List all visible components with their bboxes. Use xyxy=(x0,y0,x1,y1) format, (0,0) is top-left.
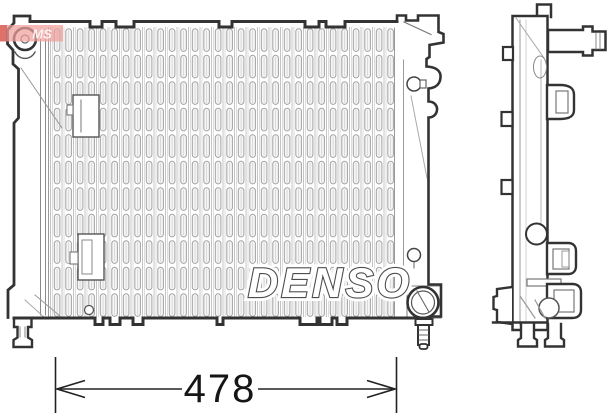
side-inlet-pipe xyxy=(548,27,606,56)
top-rail xyxy=(30,22,397,28)
side-upper-clip xyxy=(547,85,574,119)
radiator-front-view: DENSO DENSO xyxy=(8,16,444,350)
dimension-value: 478 xyxy=(184,367,257,411)
radiator-technical-drawing: DENSO DENSO xyxy=(0,0,614,416)
side-leg-2 xyxy=(545,324,564,347)
side-circle-boss xyxy=(526,224,547,245)
watermark: MS xyxy=(0,25,63,42)
side-left-bump-3 xyxy=(502,180,513,194)
side-leg-1 xyxy=(518,324,537,347)
brand-logo: DENSO xyxy=(248,259,412,306)
side-left-bump-1 xyxy=(503,47,513,60)
watermark-text: MS xyxy=(32,27,52,42)
width-dimension: 478 xyxy=(56,357,397,413)
left-edge xyxy=(8,16,31,318)
bottom-outlet xyxy=(416,319,433,349)
drain-plug xyxy=(14,318,33,347)
side-left-bump-2 xyxy=(502,112,513,126)
side-bottom-left xyxy=(494,287,513,324)
drawing-canvas: DENSO DENSO xyxy=(0,0,614,416)
bottom-rail xyxy=(14,318,430,325)
radiator-side-view xyxy=(493,5,606,347)
